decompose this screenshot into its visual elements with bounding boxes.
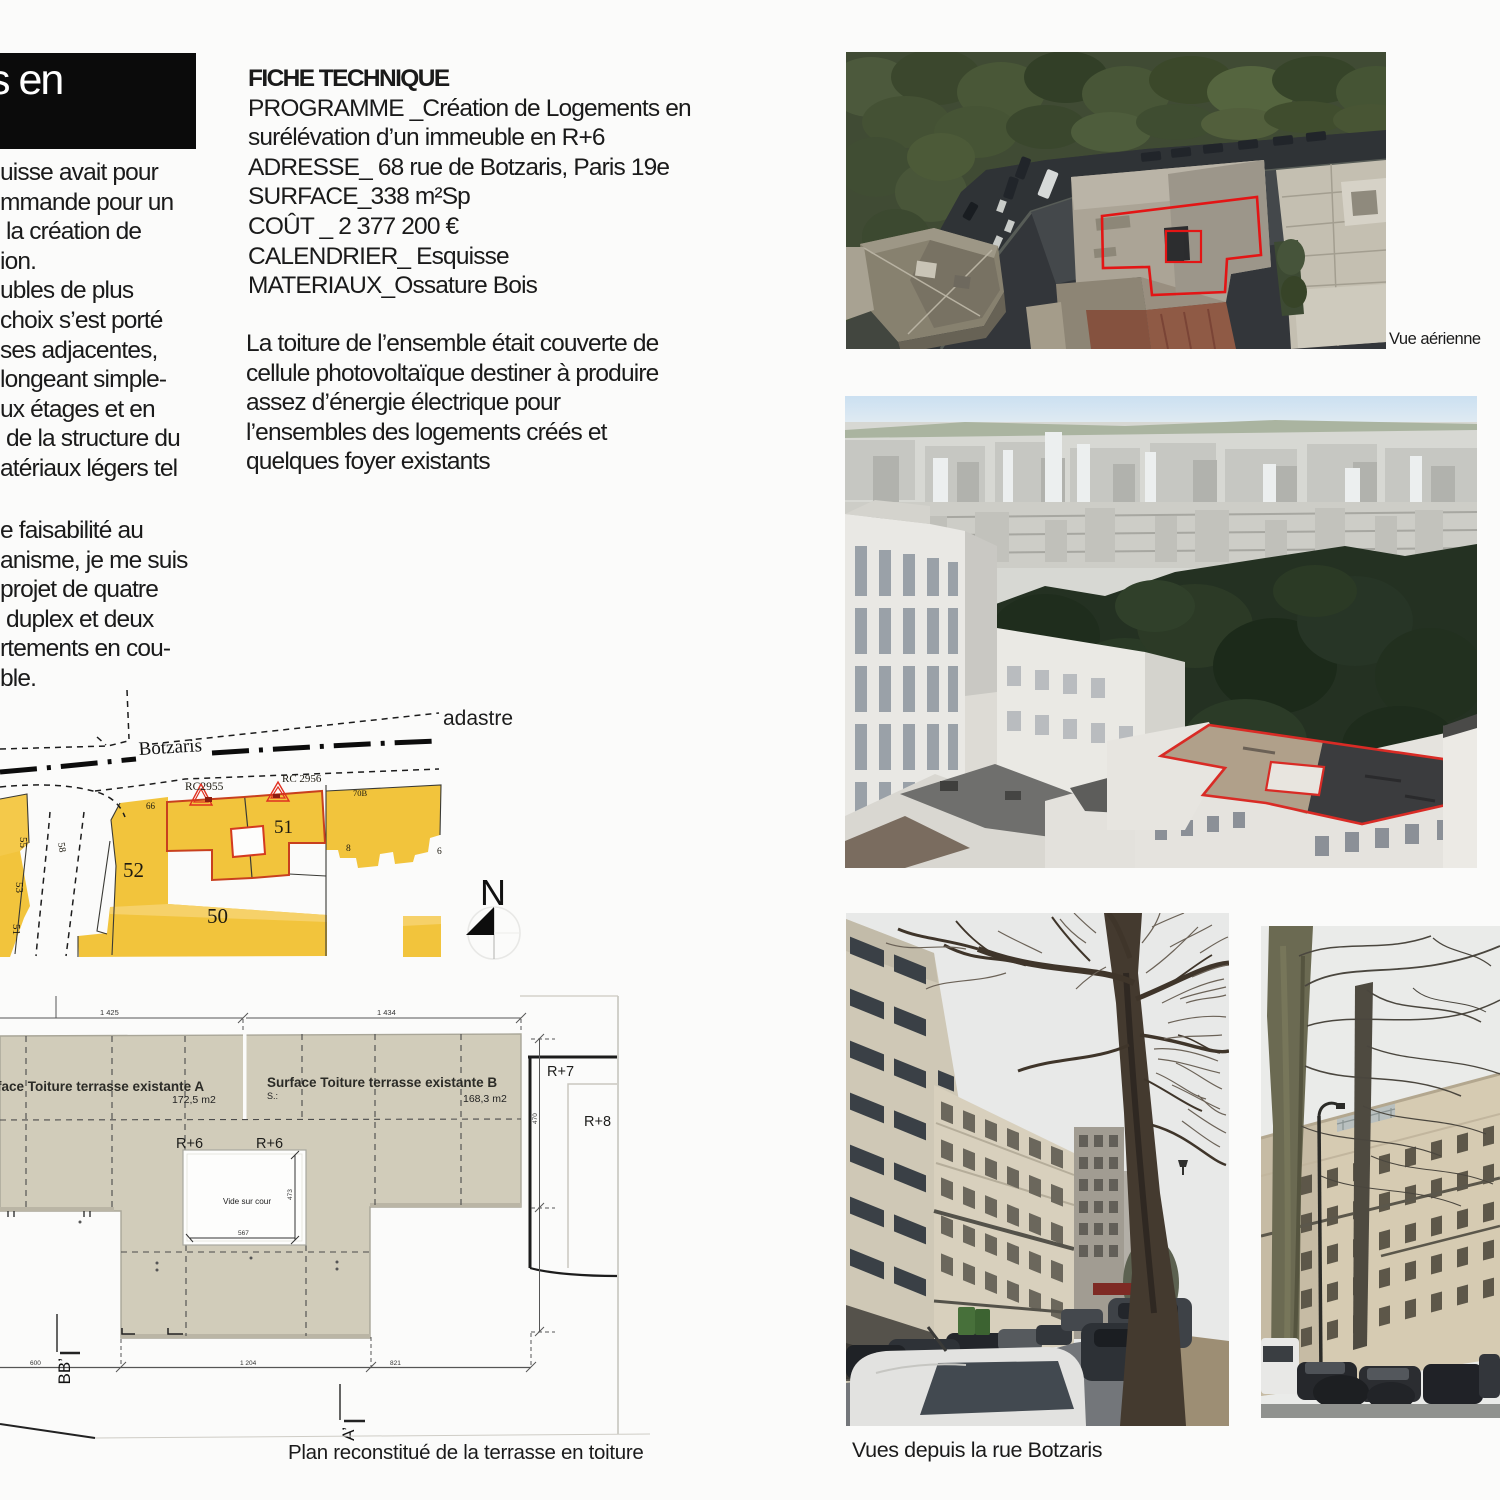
svg-text:face Toiture terrasse existant: face Toiture terrasse existante A	[0, 1079, 204, 1094]
svg-text:RC2955: RC2955	[185, 781, 224, 793]
svg-text:Botzaris: Botzaris	[138, 735, 202, 760]
svg-text:567: 567	[238, 1230, 249, 1237]
svg-text:168,3 m2: 168,3 m2	[463, 1093, 507, 1105]
svg-text:R+6: R+6	[256, 1136, 283, 1152]
svg-text:BB’: BB’	[55, 1358, 74, 1384]
svg-text:58: 58	[55, 842, 68, 854]
svg-text:53: 53	[13, 882, 25, 894]
svg-text:172,5 m2: 172,5 m2	[172, 1094, 216, 1106]
svg-text:51: 51	[10, 924, 22, 935]
svg-text:6: 6	[437, 847, 442, 857]
svg-text:S.:: S.:	[267, 1091, 278, 1101]
svg-text:52: 52	[123, 858, 144, 882]
svg-text:600: 600	[30, 1360, 41, 1367]
svg-text:1 204: 1 204	[240, 1360, 257, 1367]
svg-text:473: 473	[287, 1189, 294, 1200]
svg-text:R+7: R+7	[547, 1064, 574, 1080]
svg-text:470: 470	[532, 1113, 539, 1124]
svg-text:A’: A’	[339, 1427, 358, 1441]
svg-text:RC 2956: RC 2956	[282, 773, 322, 785]
svg-text:N: N	[480, 872, 506, 913]
svg-text:adastre: adastre	[443, 707, 513, 730]
svg-text:55: 55	[17, 837, 29, 849]
svg-text:R+6: R+6	[176, 1136, 203, 1152]
svg-text:50: 50	[207, 904, 228, 928]
svg-text:Surface Toiture terrasse exist: Surface Toiture terrasse existante B	[267, 1075, 497, 1090]
svg-text:70B: 70B	[353, 788, 368, 798]
svg-text:51: 51	[274, 817, 293, 838]
svg-text:Vide sur cour: Vide sur cour	[223, 1197, 271, 1206]
svg-text:1 434: 1 434	[377, 1008, 396, 1017]
svg-text:R+8: R+8	[584, 1114, 611, 1130]
svg-text:8: 8	[346, 844, 351, 854]
svg-text:66: 66	[146, 801, 156, 811]
svg-text:1 425: 1 425	[100, 1008, 119, 1017]
svg-text:821: 821	[390, 1360, 401, 1367]
